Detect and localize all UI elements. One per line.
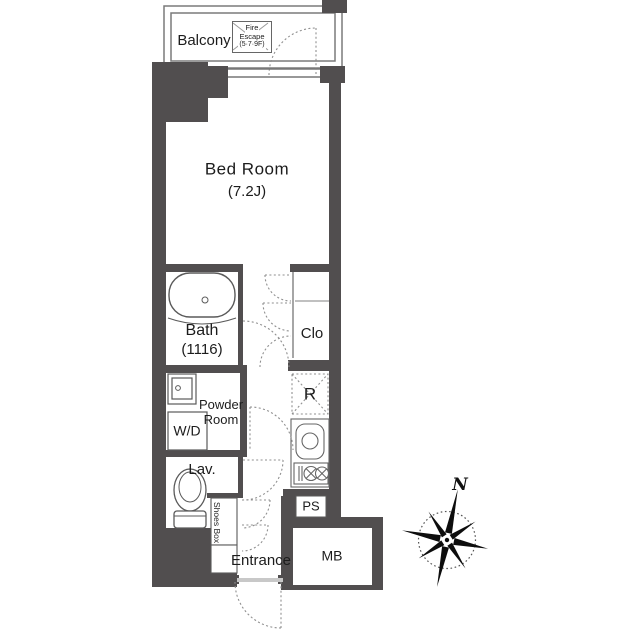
wall-kitchen-bottom [283, 489, 341, 496]
wall-left [152, 62, 166, 583]
bath-door-arc [260, 336, 291, 367]
floor-plan-drawing [0, 0, 640, 639]
bedroom-label: Bed Room [205, 161, 289, 180]
wall-powder-bottom [152, 450, 247, 457]
bedroom-size-label: (7.2J) [228, 184, 266, 201]
entrance-label: Entrance [231, 553, 291, 570]
partition-lines [293, 272, 329, 358]
fire-escape-line3: (5·7·9F) [238, 41, 265, 50]
wall-mb-bottom [281, 585, 383, 590]
refrigerator-label: R [304, 386, 316, 405]
wall-bath-bottom [152, 365, 243, 373]
wall-bottom-left-block [152, 528, 211, 587]
fire-escape-line2: Escape [238, 33, 265, 42]
powder-room-label: Powder Room [199, 397, 243, 427]
ps-label: PS [302, 499, 319, 514]
closet-label: Clo [301, 326, 324, 343]
lav-label: Lav. [188, 462, 215, 479]
fire-escape-label: Fire Escape (5·7·9F) [232, 21, 272, 53]
wall-closet-bottom [288, 360, 341, 371]
stove-icon [294, 463, 329, 484]
wall-mb-right [372, 528, 383, 588]
wall-ps-right [326, 496, 341, 517]
closet-door-arc-1 [265, 275, 291, 301]
bath-label: Bath [186, 322, 219, 340]
wall-lav-entrance [238, 457, 243, 498]
floor-plan: Balcony Fire Escape (5·7·9F) Bed Room (7… [0, 0, 640, 639]
balcony-label: Balcony [177, 33, 230, 50]
wall-top-right-block [322, 0, 347, 13]
bath-size-label: (1116) [181, 342, 222, 359]
wall-top-left-block [152, 62, 208, 122]
bathtub-icon [168, 273, 236, 324]
entrance-door-arc [235, 582, 281, 628]
wall-bedroom-bath [152, 264, 243, 272]
compass-rose-icon [390, 479, 505, 597]
wall-shoes-top [207, 493, 243, 498]
entrance-threshold [237, 578, 283, 582]
washbasin-icon [168, 374, 196, 404]
shoes-door-arc-1 [242, 500, 270, 528]
washer-dryer-label: W/D [173, 423, 200, 438]
powder-door-arc [250, 407, 293, 450]
shoes-box-label: Shoes Box [211, 499, 237, 547]
kitchen-sink-icon [296, 424, 324, 459]
wall-top-left-step [208, 66, 228, 98]
shoes-door-arc-2 [242, 525, 268, 551]
kitchen-counter [291, 419, 329, 487]
powder-room-line1: Powder [199, 397, 243, 412]
lav-door-arc [243, 460, 283, 500]
closet-door-arc-2 [263, 303, 291, 331]
hall-door-arc [243, 321, 289, 367]
wall-bath-hall [238, 271, 243, 365]
wall-closet-top [290, 264, 341, 272]
compass-north-label: N [452, 475, 468, 495]
wall-right [329, 66, 341, 517]
wall-mb-top [281, 517, 383, 528]
wall-ps-left [281, 496, 296, 517]
mb-label: MB [322, 548, 343, 563]
powder-room-line2: Room [199, 412, 243, 427]
